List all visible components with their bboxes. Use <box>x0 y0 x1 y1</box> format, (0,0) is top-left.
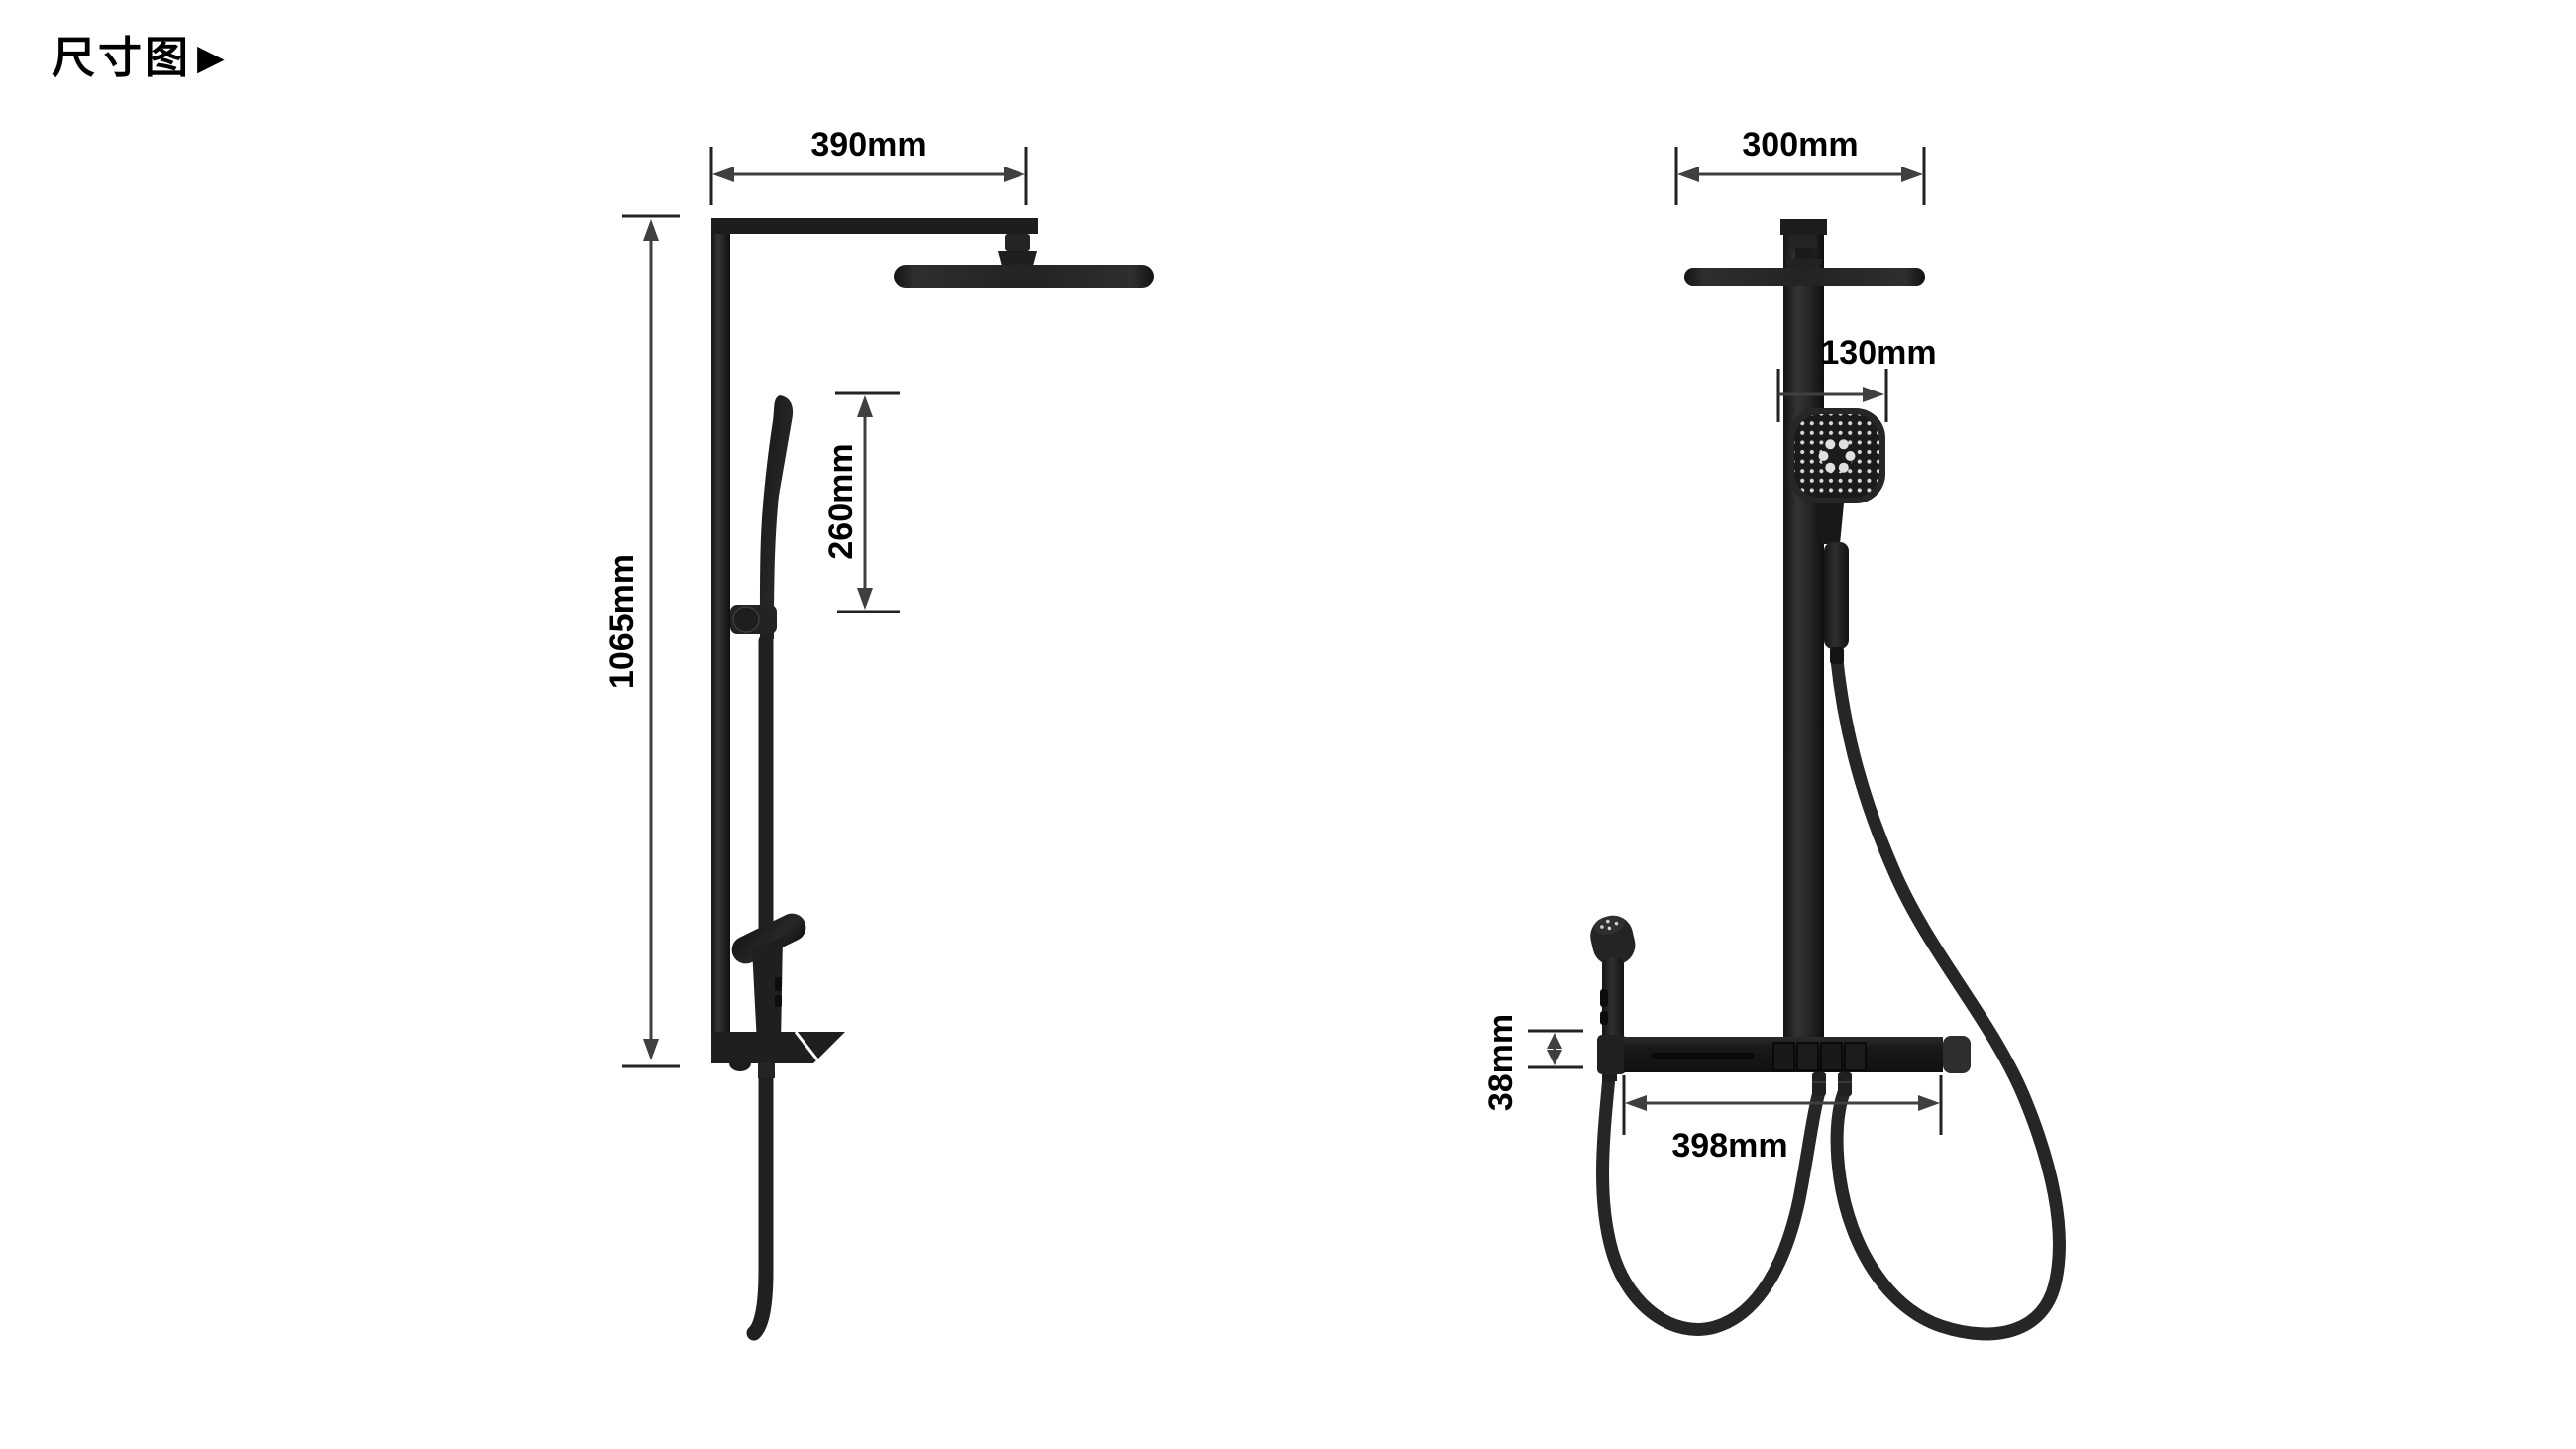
column-top-block <box>1780 219 1827 235</box>
sprayer-hose-front <box>1603 1076 1819 1329</box>
dim-front-top-width-label: 300mm <box>1742 126 1858 164</box>
dim-side-hand-shower-length-label: 260mm <box>822 443 860 559</box>
side-view: 390mm 1065mm 260mm <box>603 126 1154 1333</box>
ball-joint-side <box>998 234 1037 270</box>
hand-shower-side <box>760 395 793 639</box>
dim-side-hand-shower-length: 260mm <box>822 393 900 612</box>
rain-shower-head-side <box>894 265 1154 288</box>
shelf-side <box>711 1032 845 1078</box>
shower-column-front <box>1783 219 1824 1037</box>
slider-bracket-side <box>730 605 777 634</box>
shelf-end-cap <box>1943 1036 1971 1073</box>
dim-front-shelf-height: 38mm <box>1482 1014 1583 1111</box>
dim-side-top-width: 390mm <box>711 126 1026 205</box>
dimension-diagram-page: 尺寸图▶ <box>0 0 2576 1449</box>
dim-side-total-height: 1065mm <box>603 216 680 1066</box>
front-view: 300mm 130mm 38mm <box>1482 126 2059 1334</box>
hand-shower-hose-front <box>1837 660 2059 1334</box>
shelf-front <box>1597 1035 1971 1096</box>
dim-side-total-height-label: 1065mm <box>603 554 641 689</box>
shelf-left-bracket <box>1597 1035 1626 1074</box>
dim-front-hand-shower-width-label: 130mm <box>1820 334 1936 372</box>
shelf-slot <box>1651 1053 1755 1059</box>
diagram-canvas: 390mm 1065mm 260mm <box>0 0 2576 1449</box>
dim-front-top-width: 300mm <box>1676 126 1924 205</box>
shower-column-side <box>711 218 730 1033</box>
hose-connectors <box>1812 1072 1852 1096</box>
dim-side-top-width-label: 390mm <box>810 126 926 164</box>
rain-shower-arm-side <box>711 218 1038 234</box>
dim-front-shelf-width: 398mm <box>1624 1075 1941 1165</box>
dim-front-shelf-height-label: 38mm <box>1482 1014 1520 1111</box>
bidet-sprayer-side <box>727 909 810 1044</box>
rain-shower-head-front <box>1684 268 1925 286</box>
dim-front-shelf-width-label: 398mm <box>1671 1127 1787 1165</box>
